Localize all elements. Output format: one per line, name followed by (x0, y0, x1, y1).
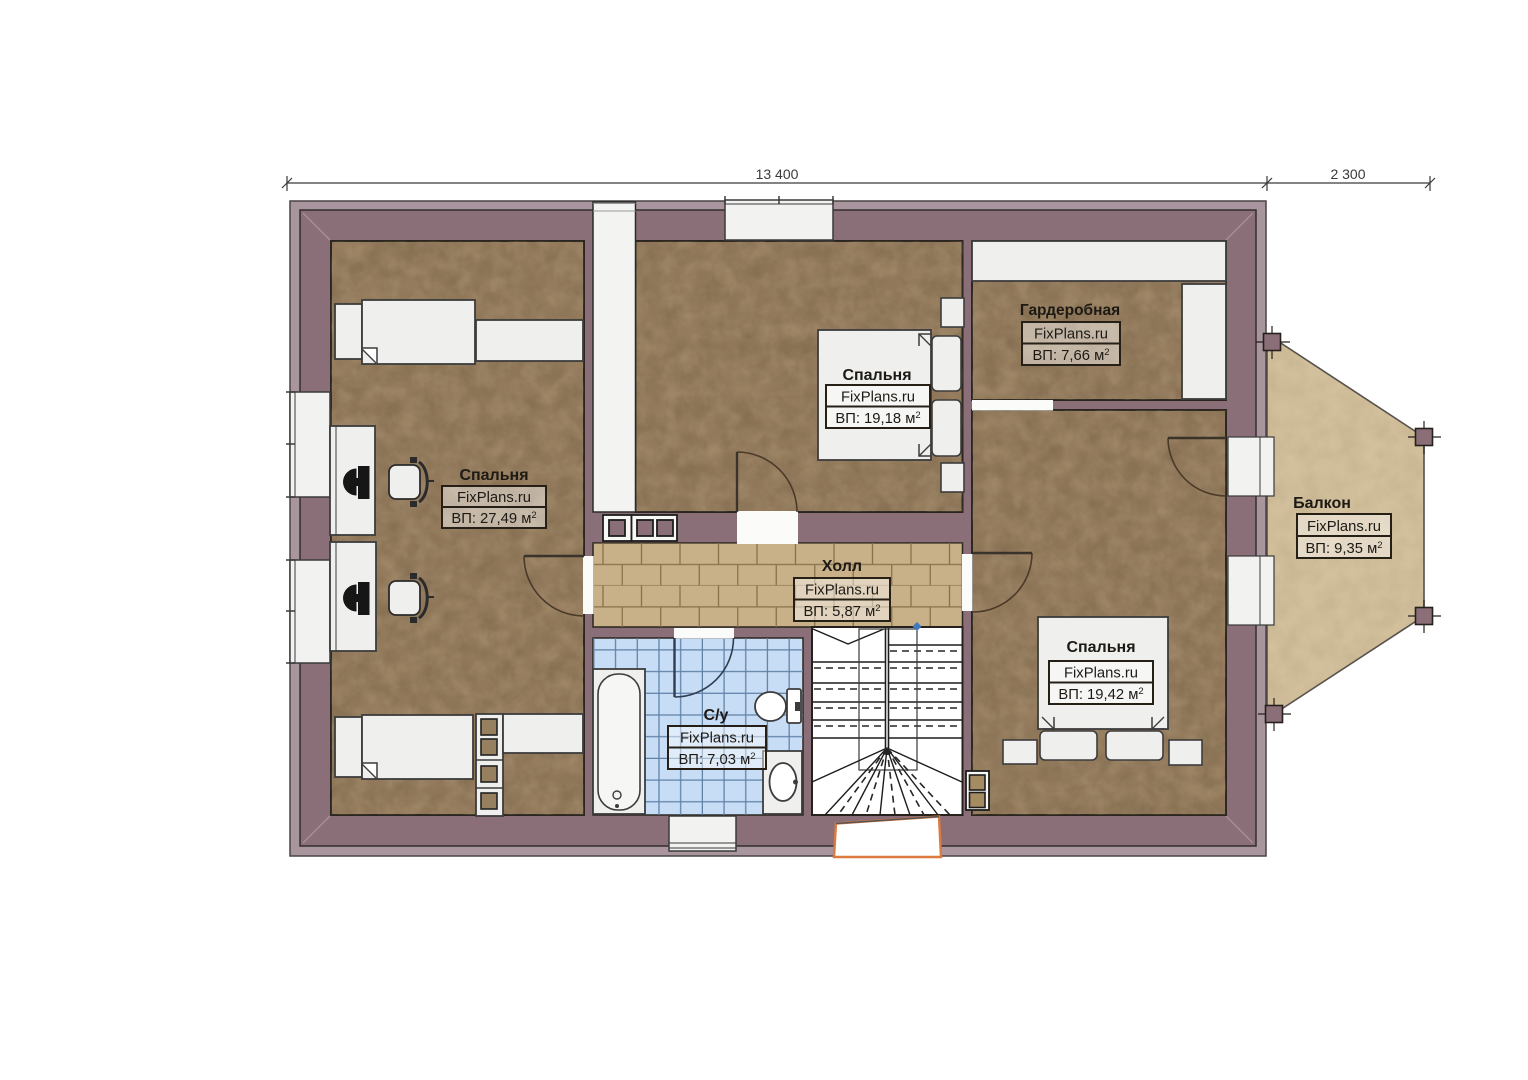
svg-text:13 400: 13 400 (756, 166, 799, 182)
svg-text:ВП: 5,87 м2: ВП: 5,87 м2 (803, 603, 880, 620)
svg-text:ВП: 19,18 м2: ВП: 19,18 м2 (835, 410, 920, 427)
svg-text:Спальня: Спальня (842, 367, 911, 384)
svg-text:ВП: 9,35 м2: ВП: 9,35 м2 (1305, 540, 1382, 557)
svg-text:Холл: Холл (822, 558, 862, 575)
svg-text:FixPlans.ru: FixPlans.ru (1034, 327, 1108, 343)
svg-text:FixPlans.ru: FixPlans.ru (1064, 666, 1138, 682)
svg-text:ВП: 19,42 м2: ВП: 19,42 м2 (1058, 686, 1143, 703)
svg-text:Гардеробная: Гардеробная (1020, 302, 1120, 319)
svg-text:Балкон: Балкон (1293, 495, 1351, 512)
svg-text:Спальня: Спальня (459, 467, 528, 484)
svg-text:FixPlans.ru: FixPlans.ru (680, 731, 754, 747)
svg-text:ВП: 27,49 м2: ВП: 27,49 м2 (451, 510, 536, 527)
svg-text:ВП: 7,66 м2: ВП: 7,66 м2 (1032, 347, 1109, 364)
svg-text:FixPlans.ru: FixPlans.ru (1307, 519, 1381, 535)
svg-text:FixPlans.ru: FixPlans.ru (805, 583, 879, 599)
svg-text:FixPlans.ru: FixPlans.ru (841, 390, 915, 406)
svg-text:Спальня: Спальня (1066, 639, 1135, 656)
svg-text:FixPlans.ru: FixPlans.ru (457, 490, 531, 506)
svg-text:ВП: 7,03 м2: ВП: 7,03 м2 (678, 751, 755, 768)
svg-text:С/у: С/у (704, 707, 729, 724)
svg-text:2 300: 2 300 (1330, 166, 1365, 182)
